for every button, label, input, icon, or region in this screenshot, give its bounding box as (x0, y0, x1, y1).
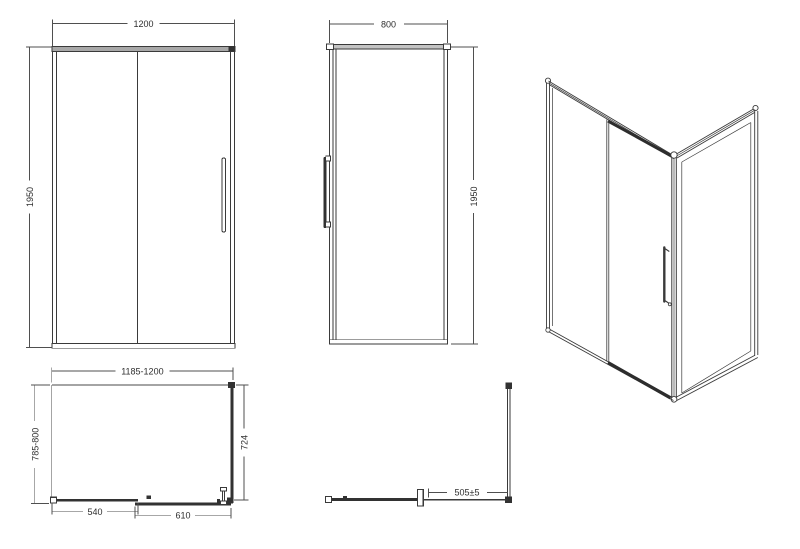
plan-sliding-door (135, 503, 231, 506)
plan-fixed-panel (52, 499, 138, 502)
side-width-dimension: 800 (330, 19, 448, 44)
front-height-label: 1950 (25, 187, 35, 207)
front-bottom-rail (52, 344, 235, 349)
plan-side-panel-cap (228, 382, 235, 388)
side-view: 800 1950 (323, 19, 479, 345)
side-top-rail-left-cap (327, 44, 334, 50)
isometric-view (545, 78, 758, 402)
side-plan-view: 505±5 (326, 382, 513, 505)
iso-left-post-cap (545, 78, 550, 83)
plan-fixed-panel-label: 540 (87, 507, 102, 517)
plan-door-stop (217, 499, 220, 502)
side-height-label: 1950 (469, 186, 479, 206)
technical-drawing-page: 1200 1950 (0, 0, 800, 549)
plan-door-guide (147, 496, 151, 499)
plan-fixed-panel-dimension: 540 (52, 503, 138, 517)
side-plan-panel-cap (506, 382, 513, 388)
side-plan-guide (343, 496, 347, 499)
plan-depth-label: 785-800 (30, 428, 40, 461)
side-width-label: 800 (381, 20, 396, 30)
plan-door-handle (221, 488, 227, 505)
front-door-handle (222, 158, 226, 232)
plan-footprint (52, 385, 233, 499)
plan-side-panel (231, 386, 234, 503)
iso-side-glass (682, 123, 751, 394)
plan-sliding-door-dimension: 610 (135, 507, 231, 521)
side-height-dimension: 1950 (451, 47, 479, 344)
side-plan-door-track (327, 498, 421, 501)
plan-side-panel-dimension: 724 (234, 385, 250, 500)
front-frame (52, 46, 235, 348)
plan-side-panel-label: 724 (240, 435, 250, 450)
plan-view: 1185-1200 785-800 724 540 (29, 366, 249, 521)
side-top-rail (327, 44, 451, 49)
iso-side-bottom-rail (677, 356, 758, 401)
iso-door-handle (664, 248, 671, 306)
iso-front-bottom-rail (547, 328, 674, 401)
side-plan-offset-label: 505±5 (455, 487, 480, 497)
front-width-label: 1200 (133, 19, 153, 29)
plan-wall-profile-cap (51, 497, 57, 503)
front-width-dimension: 1200 (53, 18, 235, 46)
side-bottom-rail (330, 340, 448, 344)
front-top-rail (52, 47, 235, 52)
iso-left-post-foot (546, 328, 550, 332)
shower-enclosure-drawing: 1200 1950 (0, 0, 800, 549)
iso-front-top-rail (549, 81, 675, 159)
iso-corner-post (671, 152, 677, 402)
iso-side-top-rail (677, 105, 759, 158)
side-top-rail-right-cap (444, 44, 451, 50)
plan-depth-dimension: 785-800 (29, 385, 50, 504)
front-view: 1200 1950 (24, 18, 235, 348)
side-frame (327, 44, 451, 344)
side-plan-roller-bracket (418, 490, 424, 506)
plan-sliding-door-label: 610 (175, 511, 190, 521)
side-plan-wall-cap (326, 497, 332, 503)
plan-width-label: 1185-1200 (121, 367, 163, 377)
plan-width-dimension: 1185-1200 (52, 366, 233, 383)
side-plan-offset-dimension: 505±5 (429, 487, 508, 498)
plan-corner-join (227, 497, 233, 503)
front-height-dimension: 1950 (24, 47, 52, 348)
front-top-rail-end-cap (229, 46, 236, 52)
